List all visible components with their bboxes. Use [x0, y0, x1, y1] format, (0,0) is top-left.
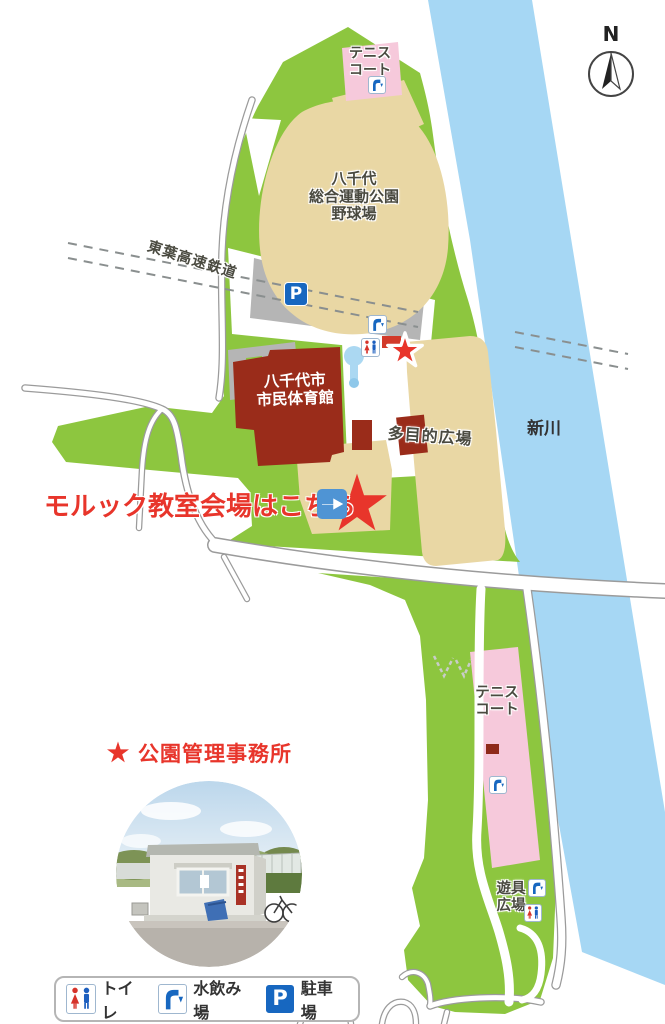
- map-legend: トイレ 水飲み場 P 駐車場: [54, 976, 360, 1022]
- court-shed-shape: [486, 744, 499, 754]
- label-river: 新川: [527, 419, 561, 439]
- office-callout-text: 公園管理事務所: [138, 738, 292, 768]
- legend-parking-label: 駐車場: [301, 975, 348, 1023]
- legend-toilet-label: トイレ: [102, 975, 149, 1023]
- compass-north-label: N: [583, 24, 639, 44]
- legend-item-toilet: トイレ: [66, 975, 149, 1023]
- toilet-icon: [361, 338, 380, 357]
- office-photo: [116, 781, 302, 967]
- label-playground: 遊具 広場: [497, 881, 526, 915]
- gym-annex-shape: [352, 420, 372, 450]
- arrow-right-icon: [317, 489, 347, 519]
- office-callout: 公園管理事務所: [104, 738, 292, 768]
- fountain-icon: [528, 879, 546, 897]
- office-star-icon: [104, 739, 132, 767]
- fountain-icon: [489, 776, 507, 794]
- park-map: テニス コート 八千代 総合運動公園 野球場 東葉高速鉄道 八千代市 市民体育館…: [0, 0, 665, 1024]
- legend-item-fountain: 水飲み場: [158, 975, 257, 1023]
- toilet-icon: [66, 984, 96, 1014]
- fountain-icon: [158, 984, 188, 1014]
- venue-callout-text: モルック教室会場はこちら: [44, 486, 356, 523]
- toilet-icon: [524, 904, 542, 922]
- legend-item-parking: P 駐車場: [265, 975, 348, 1023]
- legend-fountain-label: 水飲み場: [193, 975, 256, 1023]
- venue-star-small-icon: [383, 329, 427, 373]
- label-baseball: 八千代 総合運動公園 野球場: [309, 170, 399, 223]
- parking-icon: P: [284, 282, 308, 306]
- label-tennis-east: テニス コート: [475, 685, 519, 719]
- compass-rose: N: [583, 24, 639, 108]
- compass-needle-icon: [583, 44, 639, 104]
- parking-icon: P: [265, 984, 295, 1014]
- label-tennis-north: テニス コート: [349, 45, 391, 78]
- fountain-icon: [368, 76, 386, 94]
- label-gymnasium: 八千代市 市民体育館: [256, 370, 335, 409]
